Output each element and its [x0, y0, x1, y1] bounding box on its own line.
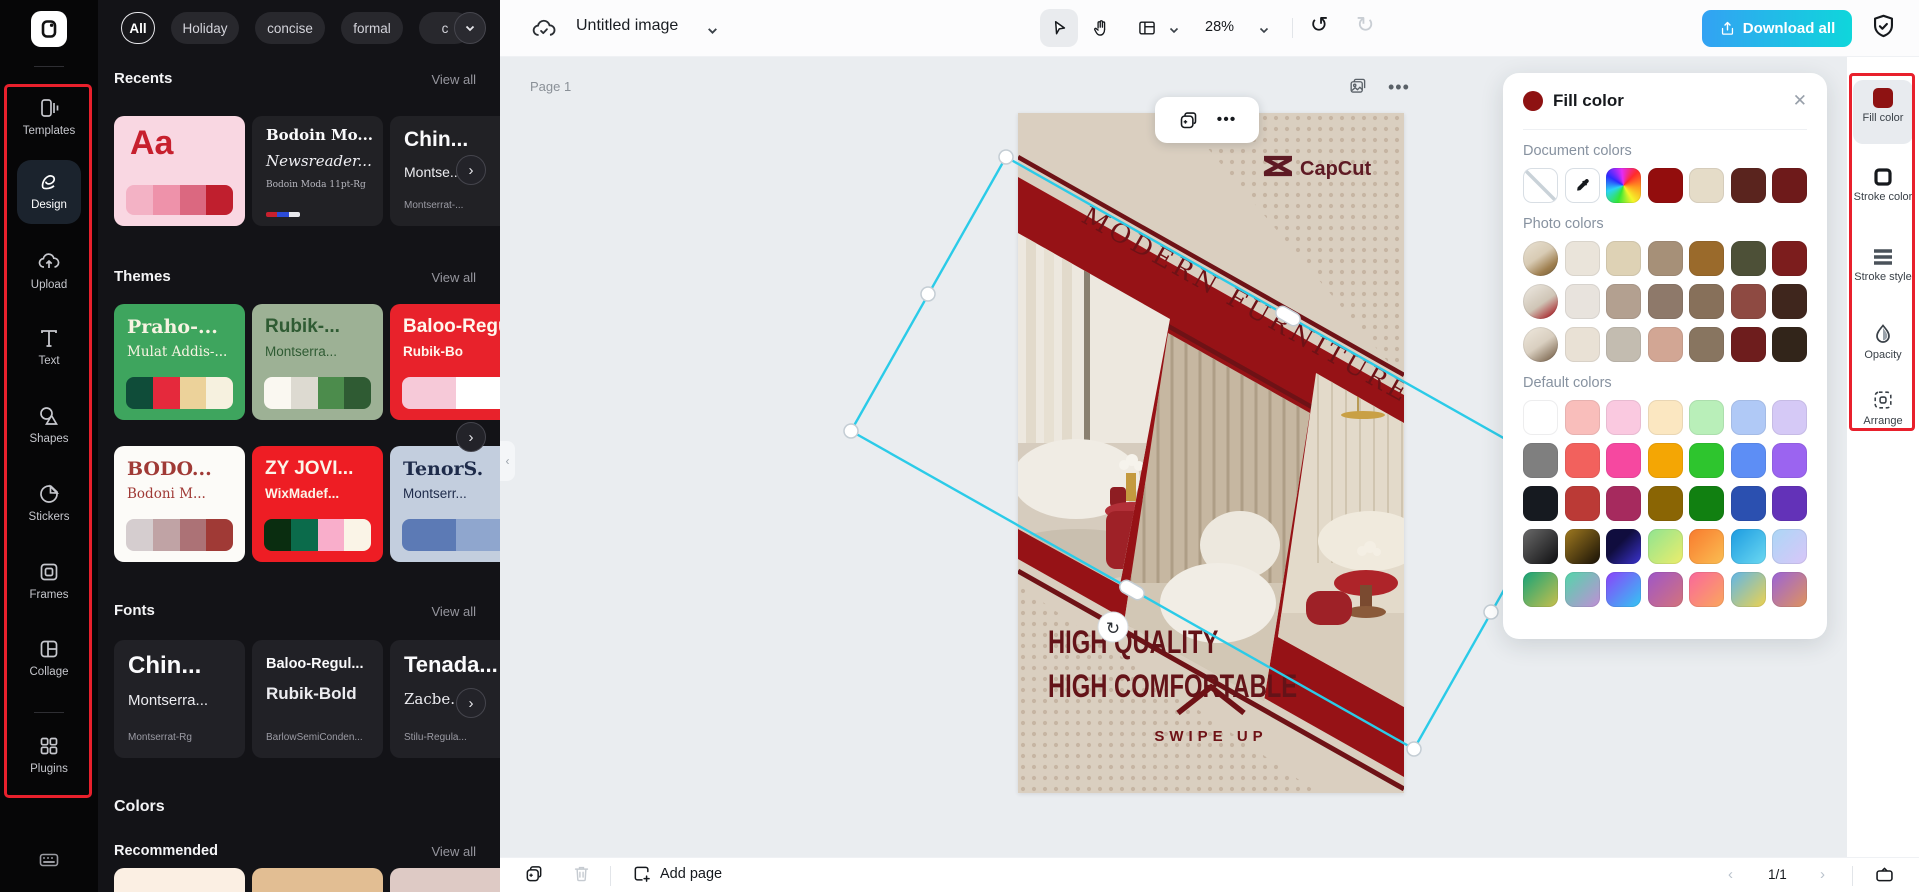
recent-card-title: Aa — [130, 124, 173, 163]
color-swatch[interactable] — [277, 212, 288, 217]
delete-page-button[interactable] — [572, 864, 591, 883]
opacity-tool[interactable]: Opacity — [1853, 315, 1913, 362]
frames-icon — [37, 560, 61, 584]
add-page-icon — [632, 864, 652, 884]
font-small: Stilu-Regula... — [404, 732, 467, 743]
page-label: Page 1 — [530, 79, 571, 94]
theme-subtitle: Mulat Addis-... — [127, 344, 227, 360]
photo-colors-label: Photo colors — [1523, 216, 1807, 232]
theme-subtitle: Montserra... — [265, 344, 337, 359]
color-swatch[interactable] — [206, 377, 233, 409]
color-card[interactable] — [252, 868, 383, 892]
stroke-style-tool[interactable]: Stroke style — [1853, 239, 1913, 284]
theme-card[interactable]: Rubik-... Montserra... — [252, 304, 383, 420]
palette-strip — [126, 185, 233, 215]
font-subtitle: Rubik-Bold — [266, 684, 357, 704]
main-area: Untitled image 28% ↺ ↻ — [500, 0, 1919, 892]
color-swatch[interactable] — [1731, 168, 1766, 203]
sidebar-item-stickers[interactable]: Stickers — [0, 482, 98, 523]
poster-sub2: HIGH COMFORTABLE — [1048, 668, 1297, 705]
color-swatch[interactable] — [1606, 400, 1641, 435]
default-color-row — [1523, 572, 1807, 607]
theme-title: ZY JOVI... — [265, 458, 353, 480]
color-swatch[interactable] — [1731, 572, 1766, 607]
font-title: Tenada... — [404, 652, 498, 678]
divider — [34, 712, 64, 713]
filter-chip-all[interactable]: All — [121, 12, 155, 44]
default-color-row — [1523, 443, 1807, 478]
filter-chip-holiday[interactable]: Holiday — [171, 12, 239, 44]
palette-strip — [126, 377, 233, 409]
capcut-logo[interactable] — [31, 11, 67, 47]
color-swatch[interactable] — [1772, 486, 1807, 521]
arrange-icon — [1872, 389, 1894, 411]
present-button[interactable] — [1874, 864, 1895, 885]
font-small: Montserrat-Rg — [128, 732, 192, 743]
default-colors-label: Default colors — [1523, 375, 1807, 391]
sidebar-item-label: Upload — [31, 279, 67, 291]
selection-handle[interactable] — [844, 424, 858, 438]
color-swatch[interactable] — [126, 377, 153, 409]
theme-subtitle: Rubik-Bo — [403, 344, 463, 359]
default-color-row — [1523, 529, 1807, 564]
theme-subtitle: WixMadef... — [265, 486, 339, 501]
color-swatch[interactable] — [1689, 241, 1724, 276]
color-swatch[interactable] — [153, 377, 180, 409]
title-menu-chevron-icon[interactable] — [706, 24, 719, 37]
color-swatch[interactable] — [1606, 284, 1641, 319]
collage-icon — [37, 637, 61, 661]
color-swatch[interactable] — [1648, 486, 1683, 521]
arrange-tool[interactable]: Arrange — [1853, 381, 1913, 428]
color-swatch[interactable] — [206, 519, 233, 551]
theme-card[interactable]: Praho-... Mulat Addis-... — [114, 304, 245, 420]
color-swatch[interactable] — [206, 185, 233, 215]
topbar: Untitled image 28% ↺ ↻ — [500, 0, 1919, 57]
color-swatch[interactable] — [1523, 486, 1558, 521]
color-swatch[interactable] — [344, 519, 371, 551]
recent-card-line2: Montse... — [404, 164, 462, 180]
capcut-editor: Templates Design Upload Text Shapes Stic… — [0, 0, 1919, 892]
color-swatch[interactable] — [266, 212, 277, 217]
download-all-button[interactable]: Download all — [1702, 10, 1852, 47]
photo-thumbnail[interactable] — [1523, 284, 1558, 319]
filters-expand-button[interactable] — [454, 12, 486, 44]
color-swatch[interactable] — [1731, 486, 1766, 521]
color-swatch[interactable] — [1689, 572, 1724, 607]
sidebar-item-shapes[interactable]: Shapes — [0, 404, 98, 445]
select-tool-button[interactable] — [1040, 9, 1078, 47]
grid-cells-icon — [1137, 18, 1157, 38]
recent-card-line2: Newsreader... — [266, 152, 372, 170]
color-swatch[interactable] — [1772, 284, 1807, 319]
recent-card-line3: Montserrat-... — [404, 200, 463, 211]
color-swatch[interactable] — [1648, 443, 1683, 478]
color-swatch[interactable] — [1689, 327, 1724, 362]
cursor-icon — [1049, 18, 1069, 38]
default-color-row — [1523, 486, 1807, 521]
color-swatch[interactable] — [1689, 443, 1724, 478]
font-title: Baloo-Regul... — [266, 656, 363, 672]
sidebar-item-templates[interactable]: Templates — [0, 96, 98, 137]
color-swatch[interactable] — [264, 519, 291, 551]
color-swatch[interactable] — [1606, 241, 1641, 276]
default-color-row — [1523, 400, 1807, 435]
sidebar-item-label: Shapes — [29, 433, 68, 445]
theme-title: Praho-... — [127, 316, 218, 338]
selection-handle[interactable] — [1484, 605, 1498, 619]
color-swatch[interactable] — [1772, 168, 1807, 203]
fill-color-icon — [1873, 88, 1893, 108]
prev-page-icon[interactable]: ‹ — [1728, 866, 1733, 883]
divider — [1523, 129, 1807, 130]
poster-sub1: HIGH QUALITY — [1048, 624, 1218, 661]
color-swatch[interactable] — [1689, 400, 1724, 435]
sidebar-item-design[interactable]: Design — [17, 160, 81, 224]
color-swatch[interactable] — [1565, 572, 1600, 607]
color-swatch[interactable] — [318, 377, 345, 409]
design-panel: All Holiday concise formal c Recents Vie… — [98, 0, 500, 892]
color-swatch[interactable] — [1772, 572, 1807, 607]
poster-brand-text: CapCut — [1300, 158, 1371, 180]
photo-thumbnail[interactable] — [1523, 327, 1558, 362]
color-swatch[interactable] — [291, 377, 318, 409]
bottombar: Add page ‹ 1/1 › — [500, 857, 1919, 892]
poster-cta: SWIPE UP — [1154, 728, 1267, 745]
sidebar-item-label: Collage — [30, 666, 69, 678]
divider — [1292, 18, 1293, 38]
color-swatch[interactable] — [1731, 241, 1766, 276]
tool-label: Stroke color — [1854, 191, 1913, 203]
mini-palette-strip — [266, 212, 300, 217]
color-swatch[interactable] — [1689, 486, 1724, 521]
safety-shield-icon[interactable] — [1870, 13, 1897, 40]
capcut-logo-icon — [39, 19, 59, 39]
color-swatch[interactable] — [1565, 400, 1600, 435]
canvas-region[interactable]: Page 1 ••• — [500, 57, 1847, 857]
tool-label: Arrange — [1863, 415, 1902, 427]
palette-strip — [402, 377, 500, 409]
sidebar-item-label: Stickers — [29, 511, 70, 523]
color-swatch[interactable] — [1565, 443, 1600, 478]
recents-view-all[interactable]: View all — [431, 72, 476, 87]
zoom-chevron-icon[interactable] — [1258, 24, 1270, 36]
properties-rail: Fill color Stroke color Stroke style Opa… — [1847, 57, 1919, 857]
theme-card[interactable]: Baloo-Regu Rubik-Bo — [390, 304, 500, 420]
theme-subtitle: Montserr... — [403, 486, 467, 501]
sidebar-item-upload[interactable]: Upload — [0, 250, 98, 291]
color-swatch[interactable] — [1648, 327, 1683, 362]
duplicate-icon[interactable] — [1178, 110, 1199, 131]
hand-icon — [1091, 18, 1111, 38]
theme-card[interactable]: BODO... Bodoni M... — [114, 446, 245, 562]
next-page-icon[interactable]: › — [1820, 866, 1825, 883]
color-swatch[interactable] — [1565, 327, 1600, 362]
color-swatch[interactable] — [1606, 443, 1641, 478]
color-swatch[interactable] — [1648, 529, 1683, 564]
recent-card-color-theme[interactable]: Aa — [114, 116, 245, 226]
color-swatch[interactable] — [291, 519, 318, 551]
color-swatch[interactable] — [1606, 572, 1641, 607]
themes-header: Themes — [114, 268, 171, 285]
workspace: Page 1 ••• — [500, 57, 1919, 857]
divider — [610, 866, 611, 886]
color-swatch[interactable] — [1648, 168, 1683, 203]
color-swatch[interactable] — [1731, 529, 1766, 564]
color-swatch[interactable] — [402, 377, 456, 409]
palette-strip — [126, 519, 233, 551]
theme-subtitle: Bodoni M... — [127, 486, 206, 502]
stickers-icon — [37, 482, 61, 506]
panel-collapse-tab[interactable]: ‹ — [500, 441, 515, 481]
color-swatch[interactable] — [180, 185, 207, 215]
recent-card-line1: Chin... — [404, 128, 468, 152]
font-title: Chin... — [128, 652, 201, 680]
font-card[interactable]: Chin... Montserra... Montserrat-Rg — [114, 640, 245, 758]
color-swatch[interactable] — [1772, 529, 1807, 564]
fonts-next-button[interactable]: › — [456, 688, 486, 718]
color-swatch[interactable] — [456, 519, 501, 551]
font-card[interactable]: Baloo-Regul... Rubik-Bold BarlowSemiCond… — [252, 640, 383, 758]
export-icon — [1719, 20, 1736, 37]
color-swatch[interactable] — [1606, 486, 1641, 521]
stroke-color-tool[interactable]: Stroke color — [1853, 159, 1913, 204]
fill-color-tool[interactable]: Fill color — [1853, 80, 1913, 144]
divider — [1852, 866, 1853, 886]
document-color-swatches — [1648, 168, 1808, 203]
page-image-icon[interactable] — [1348, 77, 1367, 101]
selection-handle[interactable] — [999, 150, 1013, 164]
sidebar-item-text[interactable]: Text — [0, 326, 98, 367]
theme-card[interactable]: TenorS. Montserr... — [390, 446, 500, 562]
color-swatch[interactable] — [1523, 572, 1558, 607]
recent-card-font[interactable]: Bodoin Mo... Newsreader... Bodoin Moda 1… — [252, 116, 383, 226]
color-swatch[interactable] — [1731, 443, 1766, 478]
templates-icon — [37, 96, 61, 120]
colors-header: Colors — [114, 798, 165, 816]
recents-next-button[interactable]: › — [456, 155, 486, 185]
theme-title: TenorS. — [403, 458, 483, 480]
color-swatch[interactable] — [1772, 241, 1807, 276]
selection-handle[interactable] — [921, 287, 935, 301]
color-swatch[interactable] — [402, 519, 456, 551]
close-icon[interactable]: ✕ — [1793, 91, 1807, 111]
current-fill-swatch — [1523, 91, 1543, 111]
color-swatch[interactable] — [1565, 486, 1600, 521]
sidebar-item-label: Design — [31, 199, 67, 211]
redo-button[interactable]: ↻ — [1356, 14, 1374, 36]
page-indicator: 1/1 — [1768, 867, 1787, 882]
pan-tool-button[interactable] — [1082, 9, 1120, 47]
design-icon — [37, 170, 61, 194]
fonts-header: Fonts — [114, 602, 155, 619]
recent-card-line3: Bodoin Moda 11pt-Rg — [266, 180, 366, 190]
color-swatch[interactable] — [1648, 572, 1683, 607]
color-swatch[interactable] — [1523, 400, 1558, 435]
sidebar-item-label: Plugins — [30, 763, 68, 775]
shapes-icon — [37, 404, 61, 428]
color-swatch[interactable] — [1523, 529, 1558, 564]
color-swatch[interactable] — [126, 519, 153, 551]
color-card[interactable] — [114, 868, 245, 892]
more-options-icon[interactable]: ••• — [1217, 111, 1237, 129]
theme-title: Rubik-... — [265, 316, 340, 338]
eyedropper-swatch[interactable] — [1565, 168, 1600, 203]
palette-strip — [264, 519, 371, 551]
color-swatch[interactable] — [1772, 443, 1807, 478]
color-swatch[interactable] — [180, 519, 207, 551]
fill-color-panel: Fill color ✕ Document colors Photo color… — [1503, 73, 1827, 639]
recents-header: Recents — [114, 70, 172, 87]
no-color-swatch[interactable] — [1523, 168, 1558, 203]
themes-next-button[interactable]: › — [456, 422, 486, 452]
cloud-save-icon[interactable] — [531, 16, 557, 42]
eyedropper-icon — [1574, 177, 1591, 194]
undo-button[interactable]: ↺ — [1310, 14, 1328, 36]
color-swatch[interactable] — [1648, 400, 1683, 435]
palette-strip — [402, 519, 500, 551]
color-swatch[interactable] — [1772, 327, 1807, 362]
recommended-view-all[interactable]: View all — [431, 844, 476, 859]
themes-view-all[interactable]: View all — [431, 270, 476, 285]
opacity-icon — [1873, 323, 1893, 345]
tool-label: Fill color — [1863, 112, 1904, 124]
color-swatch[interactable] — [180, 377, 207, 409]
photo-thumbnail[interactable] — [1523, 241, 1558, 276]
fill-panel-title: Fill color — [1553, 91, 1793, 111]
color-swatch[interactable] — [456, 377, 501, 409]
color-swatch[interactable] — [1731, 400, 1766, 435]
filter-chip-formal[interactable]: formal — [341, 12, 403, 44]
sidebar-item-collage[interactable]: Collage — [0, 637, 98, 678]
chevron-down-icon — [464, 22, 476, 34]
filter-chip-concise[interactable]: concise — [255, 12, 325, 44]
color-swatch[interactable] — [318, 519, 345, 551]
layout-grid-button[interactable] — [1128, 9, 1166, 47]
color-swatch[interactable] — [264, 377, 291, 409]
photo-color-swatches — [1565, 284, 1808, 319]
left-sidebar: Templates Design Upload Text Shapes Stic… — [0, 0, 98, 892]
color-swatch[interactable] — [344, 377, 371, 409]
color-swatch[interactable] — [153, 519, 180, 551]
stroke-color-icon — [1873, 167, 1893, 187]
palette-strip — [264, 377, 371, 409]
poster-artboard[interactable]: CapCut MODERN FURNITURE HIGH QUALITY HIG… — [1018, 113, 1404, 793]
tool-label: Stroke style — [1854, 271, 1911, 283]
color-swatch[interactable] — [1648, 284, 1683, 319]
duplicate-page-button[interactable] — [524, 864, 544, 884]
add-page-label: Add page — [660, 866, 722, 882]
element-toolbar: ••• — [1155, 97, 1259, 143]
color-swatch[interactable] — [1731, 327, 1766, 362]
color-card[interactable] — [390, 868, 500, 892]
sidebar-item-plugins[interactable]: Plugins — [0, 734, 98, 775]
fonts-view-all[interactable]: View all — [431, 604, 476, 619]
page-more-icon[interactable]: ••• — [1388, 77, 1410, 98]
tool-label: Opacity — [1864, 349, 1901, 361]
sidebar-item-label: Templates — [23, 125, 75, 137]
grid-chevron-icon[interactable] — [1168, 24, 1180, 36]
upload-icon — [37, 250, 61, 274]
sidebar-item-label: Frames — [30, 589, 69, 601]
color-swatch[interactable] — [1689, 529, 1724, 564]
selection-handle[interactable] — [1407, 742, 1421, 756]
color-swatch[interactable] — [153, 185, 180, 215]
font-small: BarlowSemiConden... — [266, 732, 363, 743]
font-subtitle: Montserra... — [128, 692, 208, 709]
sidebar-item-label: Text — [38, 355, 59, 367]
rainbow-picker-swatch[interactable] — [1606, 168, 1641, 203]
color-swatch[interactable] — [1565, 284, 1600, 319]
theme-card[interactable]: ZY JOVI... WixMadef... — [252, 446, 383, 562]
plugins-icon — [37, 734, 61, 758]
color-swatch[interactable] — [289, 212, 300, 217]
color-swatch[interactable] — [1772, 400, 1807, 435]
color-swatch[interactable] — [1565, 529, 1600, 564]
document-title[interactable]: Untitled image — [576, 17, 678, 35]
theme-title: Baloo-Regu — [403, 316, 500, 338]
add-page-button[interactable]: Add page — [632, 864, 722, 884]
divider — [34, 66, 64, 67]
color-swatch[interactable] — [1731, 284, 1766, 319]
photo-color-swatches — [1565, 327, 1808, 362]
color-swatch[interactable] — [1565, 241, 1600, 276]
color-swatch[interactable] — [1606, 529, 1641, 564]
theme-title: BODO... — [127, 458, 212, 480]
download-all-label: Download all — [1743, 20, 1836, 37]
photo-color-swatches — [1565, 241, 1808, 276]
sidebar-item-frames[interactable]: Frames — [0, 560, 98, 601]
color-swatch[interactable] — [1648, 241, 1683, 276]
color-swatch[interactable] — [1689, 284, 1724, 319]
color-swatch[interactable] — [1523, 443, 1558, 478]
document-colors-label: Document colors — [1523, 143, 1807, 159]
color-swatch[interactable] — [1689, 168, 1724, 203]
zoom-level[interactable]: 28% — [1205, 19, 1234, 35]
color-swatch[interactable] — [126, 185, 153, 215]
stroke-style-icon — [1872, 247, 1894, 267]
color-swatch[interactable] — [1606, 327, 1641, 362]
keyboard-shortcuts-icon[interactable] — [37, 848, 61, 877]
text-icon — [37, 326, 61, 350]
recommended-header: Recommended — [114, 843, 218, 859]
recent-card-line1: Bodoin Mo... — [266, 126, 373, 144]
